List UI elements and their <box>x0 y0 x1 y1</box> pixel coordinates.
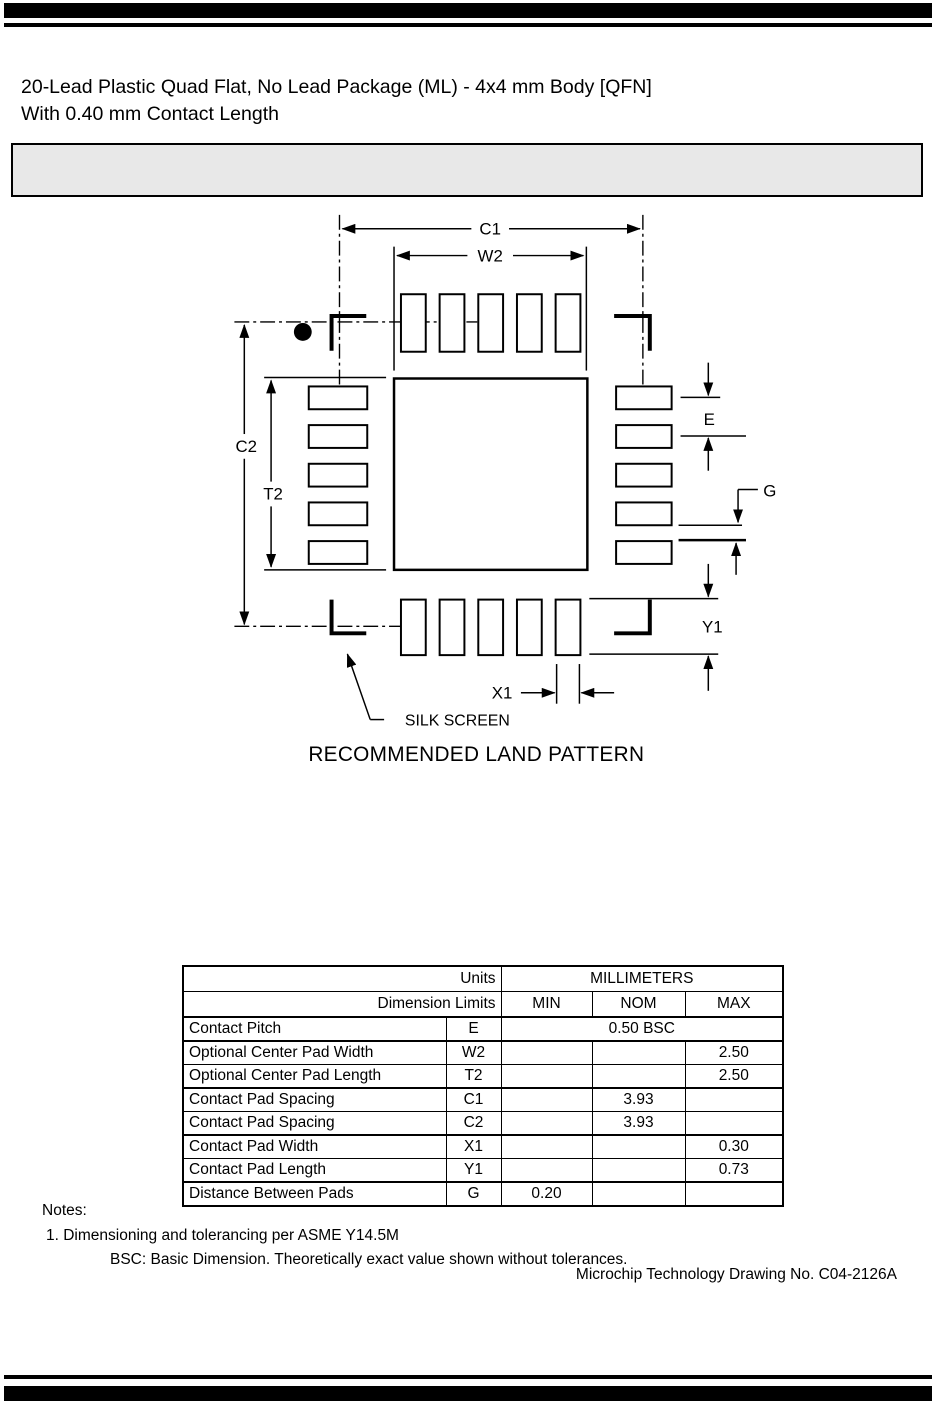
table-row: Contact Pad Length Y1 0.73 <box>183 1159 783 1183</box>
package-title: 20-Lead Plastic Quad Flat, No Lead Packa… <box>21 74 652 128</box>
max-cell <box>685 1088 783 1112</box>
package-title-line1: 20-Lead Plastic Quad Flat, No Lead Packa… <box>21 74 652 101</box>
dim-label-c1: C1 <box>479 220 501 239</box>
datasheet-page: 20-Lead Plastic Quad Flat, No Lead Packa… <box>0 0 936 1412</box>
table-row-units: Units MILLIMETERS <box>183 966 783 992</box>
land-pattern-drawing: C1 W2 C2 T2 E <box>225 205 800 785</box>
max-cell: 0.73 <box>685 1159 783 1183</box>
min-cell <box>501 1112 592 1136</box>
min-cell <box>501 1135 592 1159</box>
min-cell: 0.20 <box>501 1182 592 1206</box>
col-header-min: MIN <box>501 992 592 1018</box>
land-pad <box>401 600 426 656</box>
left-pad-column <box>309 386 367 563</box>
dimensions-table: Units MILLIMETERS Dimension Limits MIN N… <box>182 965 784 1207</box>
dim-g <box>679 490 758 575</box>
silkscreen-corner-bottom-left <box>332 600 367 634</box>
max-cell <box>685 1112 783 1136</box>
silkscreen-corner-top-right <box>614 316 650 351</box>
units-label-cell: Units <box>183 966 501 992</box>
center-pad <box>394 379 587 570</box>
param-cell: Contact Pad Width <box>183 1135 446 1159</box>
package-title-line2: With 0.40 mm Contact Length <box>21 101 652 128</box>
max-cell: 2.50 <box>685 1065 783 1089</box>
min-cell <box>501 1088 592 1112</box>
symbol-cell: X1 <box>446 1135 501 1159</box>
land-pad <box>478 600 503 656</box>
bottom-border-thin <box>4 1375 932 1379</box>
table-row: Contact Pad Spacing C1 3.93 <box>183 1088 783 1112</box>
symbol-cell: T2 <box>446 1065 501 1089</box>
land-pad <box>517 600 542 656</box>
land-pad <box>309 425 367 448</box>
land-pad <box>440 294 465 352</box>
silkscreen-corner-top-left <box>332 316 367 351</box>
silkscreen-label: SILK SCREEN <box>405 713 510 730</box>
land-pad <box>401 294 426 352</box>
land-pad <box>309 464 367 487</box>
top-border-thin <box>4 23 932 27</box>
param-cell: Contact Pitch <box>183 1017 446 1041</box>
min-cell <box>501 1159 592 1183</box>
land-pad <box>309 386 367 409</box>
symbol-cell: C2 <box>446 1112 501 1136</box>
units-value-cell: MILLIMETERS <box>501 966 783 992</box>
right-pad-column <box>616 386 672 563</box>
max-cell: 2.50 <box>685 1041 783 1065</box>
notes-heading: Notes: <box>42 1202 87 1220</box>
land-pad <box>616 464 672 487</box>
symbol-cell: G <box>446 1182 501 1206</box>
table-row-limits: Dimension Limits MIN NOM MAX <box>183 992 783 1018</box>
symbol-cell: W2 <box>446 1041 501 1065</box>
col-header-nom: NOM <box>592 992 685 1018</box>
nom-cell <box>592 1135 685 1159</box>
limits-label-cell: Dimension Limits <box>183 992 501 1018</box>
revision-band <box>11 143 923 197</box>
min-cell <box>501 1065 592 1089</box>
land-pad <box>309 502 367 525</box>
table-row: Contact Pad Spacing C2 3.93 <box>183 1112 783 1136</box>
param-cell: Contact Pad Spacing <box>183 1112 446 1136</box>
land-pad <box>517 294 542 352</box>
land-pad <box>616 386 672 409</box>
max-cell <box>685 1182 783 1206</box>
param-cell: Contact Pad Length <box>183 1159 446 1183</box>
land-pad <box>556 600 581 656</box>
land-pad <box>440 600 465 656</box>
param-cell: Distance Between Pads <box>183 1182 446 1206</box>
min-cell <box>501 1041 592 1065</box>
nom-cell: 3.93 <box>592 1088 685 1112</box>
dim-label-e: E <box>704 410 715 429</box>
symbol-cell: Y1 <box>446 1159 501 1183</box>
dim-label-x1: X1 <box>492 684 513 703</box>
land-pad <box>478 294 503 352</box>
table-row: Optional Center Pad Length T2 2.50 <box>183 1065 783 1089</box>
land-pad <box>309 541 367 564</box>
nom-cell <box>592 1065 685 1089</box>
value-span-cell: 0.50 BSC <box>501 1017 783 1041</box>
dim-y1 <box>589 564 718 691</box>
table-row: Optional Center Pad Width W2 2.50 <box>183 1041 783 1065</box>
silkscreen-callout-leader <box>347 654 384 719</box>
top-pad-row <box>401 294 580 352</box>
symbol-cell: E <box>446 1017 501 1041</box>
bottom-border-thick <box>4 1386 932 1401</box>
table-row: Contact Pad Width X1 0.30 <box>183 1135 783 1159</box>
top-border-thick <box>4 3 932 18</box>
nom-cell <box>592 1159 685 1183</box>
land-pad <box>616 502 672 525</box>
dim-label-y1: Y1 <box>702 617 723 636</box>
param-cell: Optional Center Pad Length <box>183 1065 446 1089</box>
note-item-2: BSC: Basic Dimension. Theoretically exac… <box>110 1251 628 1269</box>
max-cell: 0.30 <box>685 1135 783 1159</box>
dim-label-g: G <box>763 481 776 500</box>
land-pad <box>616 425 672 448</box>
nom-cell <box>592 1182 685 1206</box>
table-row: Contact Pitch E 0.50 BSC <box>183 1017 783 1041</box>
dim-x1 <box>521 664 614 704</box>
nom-cell: 3.93 <box>592 1112 685 1136</box>
land-pad <box>556 294 581 352</box>
drawing-number: Microchip Technology Drawing No. C04-212… <box>576 1266 897 1284</box>
nom-cell <box>592 1041 685 1065</box>
drawing-caption: RECOMMENDED LAND PATTERN <box>308 743 644 766</box>
land-pad <box>616 541 672 564</box>
table-row: Distance Between Pads G 0.20 <box>183 1182 783 1206</box>
bottom-pad-row <box>401 600 580 656</box>
silkscreen-corner-bottom-right <box>614 600 650 634</box>
dim-label-w2: W2 <box>478 247 503 266</box>
pin1-indicator-dot <box>294 323 312 341</box>
symbol-cell: C1 <box>446 1088 501 1112</box>
param-cell: Contact Pad Spacing <box>183 1088 446 1112</box>
note-item-1: 1. Dimensioning and tolerancing per ASME… <box>46 1227 399 1245</box>
dim-label-c2: C2 <box>236 437 258 456</box>
col-header-max: MAX <box>685 992 783 1018</box>
param-cell: Optional Center Pad Width <box>183 1041 446 1065</box>
dim-label-t2: T2 <box>263 484 283 503</box>
